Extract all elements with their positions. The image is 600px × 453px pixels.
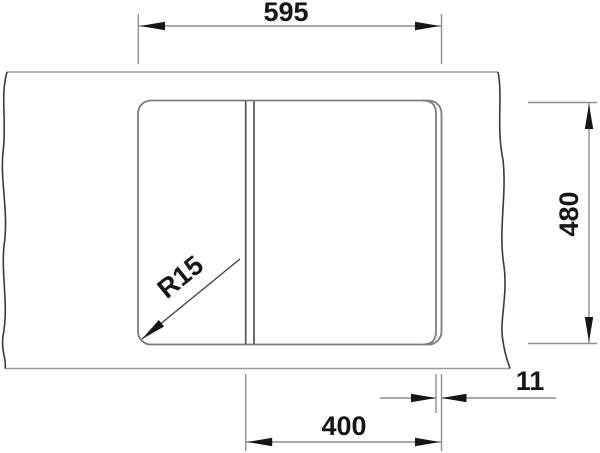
dimension-overall-width: 595 (138, 0, 441, 64)
sink-outer-edge (138, 101, 442, 345)
sink-outline (138, 101, 442, 345)
arrowhead-left (140, 22, 165, 30)
countertop (2, 72, 510, 369)
arrowhead-right (415, 438, 440, 446)
arrowhead-left (247, 438, 272, 446)
corner-radius-label: R15 (152, 250, 209, 304)
radius-callout: R15 (142, 250, 240, 339)
dimension-edge-offset: 11 (380, 366, 556, 413)
overall-depth-label: 480 (554, 191, 584, 236)
arrowhead-top (585, 104, 593, 129)
dimension-bowl-width: 400 (246, 374, 442, 451)
dimension-overall-depth: 480 (528, 103, 597, 344)
countertop-left-break-line (2, 72, 7, 369)
arrowhead-pointing-right (411, 394, 436, 402)
sink-inner-right-edge (423, 101, 436, 345)
countertop-right-break-line (498, 72, 510, 369)
edge-offset-label: 11 (516, 366, 545, 396)
radius-arrowhead (142, 320, 164, 339)
arrowhead-pointing-left (442, 394, 467, 402)
overall-width-label: 595 (263, 0, 308, 27)
drawing-canvas: 595 480 400 11 (0, 0, 600, 453)
sink-dimension-drawing: 595 480 400 11 (0, 0, 600, 453)
bowl-width-label: 400 (321, 411, 366, 441)
arrowhead-bottom (585, 317, 593, 342)
arrowhead-right (415, 22, 440, 30)
